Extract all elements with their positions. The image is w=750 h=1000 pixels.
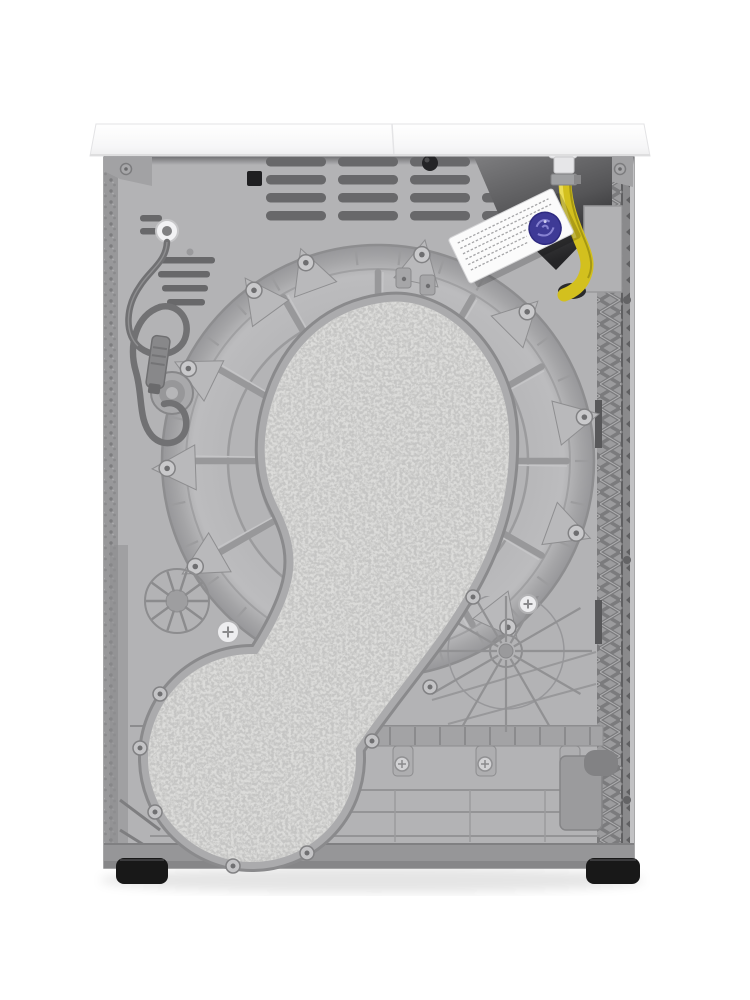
cable-grommet-core [162,226,172,236]
ground-shadow [100,867,644,893]
hose-connector [554,157,574,173]
panel-rivet [187,249,194,256]
right-edge-highlight [630,157,634,867]
knockout-highlight [425,158,430,163]
leveling-foot-left [116,858,168,884]
hose-clamp [551,174,577,185]
clip-pin [426,284,430,288]
worktop [90,124,650,156]
dryer-rear-photo [0,0,750,1000]
left-channel [110,545,128,860]
frame-slot [595,600,602,644]
felt-pad-lower [148,654,356,862]
clamp-screw [574,175,581,184]
machine-body [90,124,650,884]
cable-clip [247,171,262,186]
base-underside [104,861,634,868]
leveling-foot-right [586,858,640,884]
clip-pin [402,277,406,281]
knockout-grommet [422,155,438,171]
product-photo [0,0,750,1000]
base-cylinder [584,750,618,776]
top-panel [90,124,650,156]
frame-slot [595,400,602,448]
